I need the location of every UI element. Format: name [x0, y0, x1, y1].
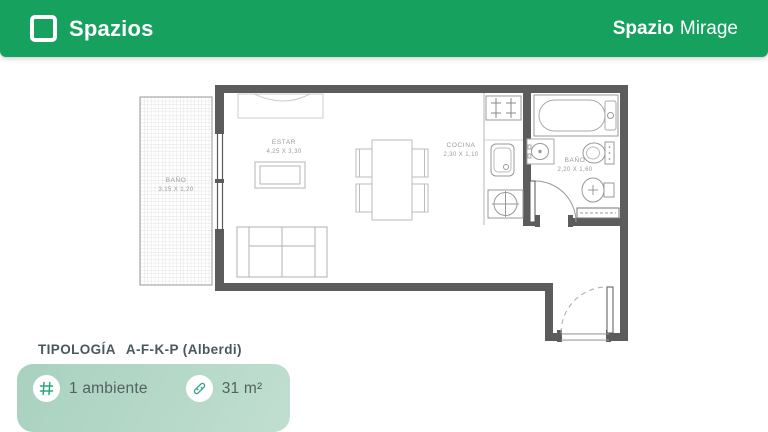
washing-machine: [488, 190, 523, 218]
bathtub: [534, 95, 618, 136]
sofa: [237, 227, 327, 277]
room-label-kitchen: COCINA 2,30 X 1,10: [443, 142, 478, 158]
stat-area: 31 m²: [186, 375, 263, 402]
entry-door: [561, 287, 613, 333]
bed: [238, 94, 323, 118]
coffee-table: [255, 162, 305, 188]
svg-text:ESTAR: ESTAR: [272, 139, 296, 146]
window: [215, 131, 224, 232]
header-bar: Spazios Spazio Mirage: [0, 0, 768, 57]
stat-ambientes: 1 ambiente: [33, 375, 148, 402]
bathroom-shelf: [577, 208, 619, 218]
entry-threshold: [561, 333, 609, 340]
project-title: Spazio Mirage: [613, 18, 738, 40]
svg-text:BAÑO: BAÑO: [565, 155, 586, 164]
unit-stats-card: 1 ambiente 31 m²: [17, 364, 290, 432]
dining-table: [356, 140, 428, 220]
project-title-rest: Mirage: [680, 18, 738, 40]
svg-text:3,15 X 1,20: 3,15 X 1,20: [158, 187, 193, 193]
bidet: [582, 178, 614, 202]
room-label-living: ESTAR 4,25 X 3,30: [266, 139, 301, 155]
project-title-bold: Spazio: [613, 18, 674, 40]
svg-text:COCINA: COCINA: [447, 142, 476, 149]
brand-lockup: Spazios: [30, 15, 154, 42]
svg-text:2,30 X 1,10: 2,30 X 1,10: [443, 152, 478, 158]
area-value: 31 m²: [222, 380, 263, 398]
spazios-logo-icon: [30, 15, 57, 42]
typology-label: TIPOLOGÍA: [38, 342, 116, 357]
svg-text:4,25 X 3,30: 4,25 X 3,30: [266, 149, 301, 155]
svg-text:BAÑO: BAÑO: [166, 175, 187, 184]
ruler-icon: [186, 375, 213, 402]
bathroom-sink: [527, 139, 554, 164]
typology-title: TIPOLOGÍAA-F-K-P (Alberdi): [38, 342, 242, 357]
toilet: [583, 142, 614, 164]
stove: [486, 96, 521, 120]
brand-name: Spazios: [69, 16, 154, 42]
ambientes-value: 1 ambiente: [69, 380, 148, 398]
kitchen-sink: [491, 144, 514, 176]
svg-text:2,20 X 1,60: 2,20 X 1,60: [557, 167, 592, 173]
typology-value: A-F-K-P (Alberdi): [126, 342, 242, 357]
grid-icon: [33, 375, 60, 402]
